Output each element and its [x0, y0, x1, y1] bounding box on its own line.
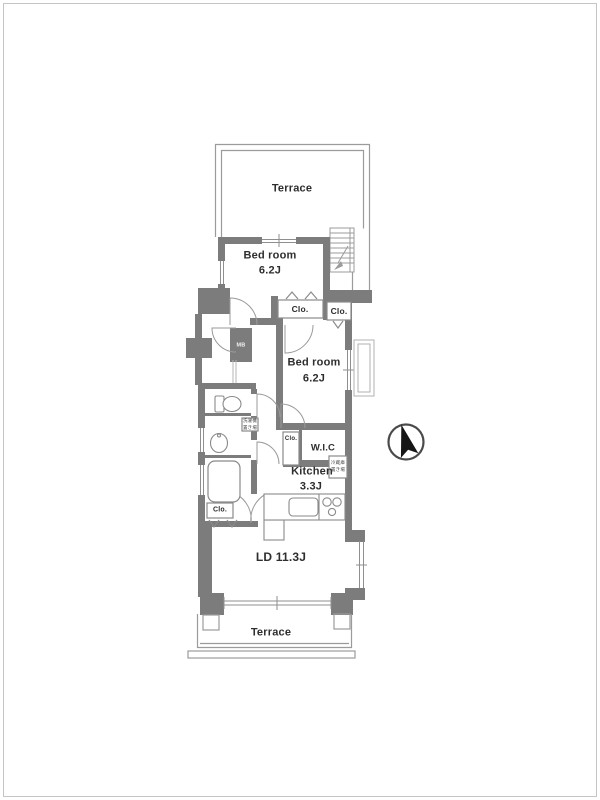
entrance-step-lines	[233, 360, 236, 383]
hall-closet-label: Clo.	[285, 436, 297, 442]
wash-basin-icon	[211, 434, 228, 453]
compass-icon	[389, 422, 424, 459]
washer-note-line1: 洗濯機	[243, 419, 257, 424]
terrace-bottom-label: Terrace	[251, 628, 291, 639]
washer-note-line2: 置き場	[243, 426, 257, 431]
living-dining-label: LD 11.3J	[256, 551, 306, 563]
service-balcony-outline	[354, 340, 374, 396]
closet1-label: Clo.	[292, 305, 309, 314]
kitchen-counter	[264, 494, 345, 540]
floor-plan-drawing	[0, 0, 600, 800]
toilet-icon	[215, 396, 241, 412]
closet3-label: Clo.	[213, 507, 227, 514]
meter-box-label: MB	[237, 343, 246, 349]
bedroom2-label: Bed room	[288, 358, 341, 369]
kitchen-label: Kitchen	[291, 467, 333, 478]
bathtub-icon	[208, 461, 240, 502]
floor-plan: Terrace Bed room 6.2J Clo. Clo. Bed room…	[0, 0, 600, 800]
fridge-note-line2: 置き場	[331, 468, 345, 473]
closet2-label: Clo.	[331, 307, 348, 316]
bedroom1-label: Bed room	[244, 251, 297, 262]
bedroom2-size-label: 6.2J	[303, 374, 325, 385]
terrace-top-label: Terrace	[272, 184, 312, 195]
bedroom1-size-label: 6.2J	[259, 266, 281, 277]
kitchen-sink-icon	[289, 498, 318, 516]
fridge-note-line1: 冷蔵庫	[331, 461, 345, 466]
kitchen-size-label: 3.3J	[300, 482, 322, 493]
wic-label: W.I.C	[311, 443, 335, 453]
terrace-top-outline	[216, 145, 370, 297]
stairs-icon	[330, 228, 354, 272]
